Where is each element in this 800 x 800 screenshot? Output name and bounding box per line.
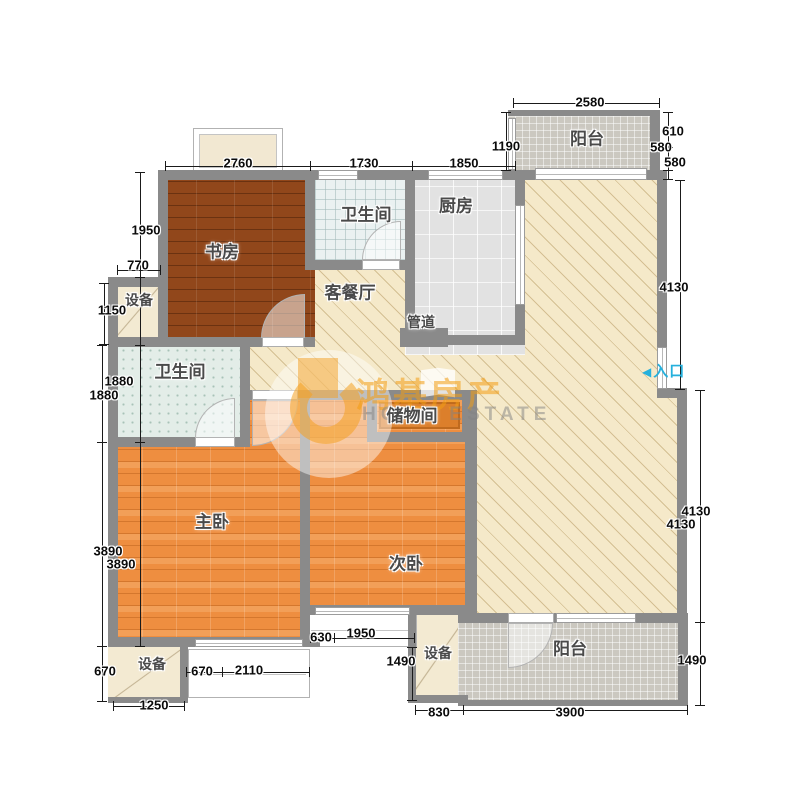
dimension-line	[309, 667, 310, 677]
dimension-line	[165, 161, 166, 171]
living-room-top-window	[535, 168, 647, 180]
dimension-line	[463, 705, 464, 715]
master-bay-window-strip	[195, 639, 303, 647]
bathroom-left-door-opening	[195, 437, 235, 447]
dimension-line	[117, 265, 118, 275]
dimension-line	[97, 646, 107, 647]
dimension-line	[695, 622, 705, 623]
dimension-line	[675, 180, 685, 181]
dimension-label: 1880	[105, 375, 134, 388]
dimension-line	[414, 633, 415, 643]
wall	[508, 110, 660, 116]
dimension-line	[97, 442, 107, 443]
dimension-label: 1490	[678, 654, 707, 667]
dimension-label: 1880	[90, 389, 119, 402]
room-label: 阳台	[570, 131, 604, 148]
room-label: 书房	[205, 244, 239, 261]
entrance-label: 入口	[653, 364, 685, 379]
dimension-line	[695, 705, 705, 706]
dimension-line	[135, 172, 145, 173]
dimension-label: 1950	[347, 627, 376, 640]
dimension-line	[407, 700, 417, 701]
dimension-line	[186, 667, 187, 677]
dimension-line	[663, 112, 673, 113]
dimension-line	[687, 705, 688, 715]
dimension-line	[513, 98, 514, 108]
dimension-line	[675, 389, 685, 390]
dimension-line	[415, 710, 688, 711]
dimension-label: 1950	[132, 224, 161, 237]
balcony-bottom-floor	[458, 613, 688, 706]
dimension-line	[140, 172, 141, 647]
room-label: 设备	[138, 657, 166, 671]
dimension-line	[135, 646, 145, 647]
dimension-line	[99, 283, 109, 284]
dimension-label: 610	[662, 125, 684, 138]
dimension-line	[135, 442, 145, 443]
wall	[305, 170, 315, 270]
room-label: 次卧	[389, 556, 423, 573]
dimension-label: 830	[428, 706, 450, 719]
dimension-label: 1730	[350, 157, 379, 170]
dimension-label: 580	[664, 156, 686, 169]
entrance-arrow-icon: ◀	[642, 366, 651, 378]
dimension-line	[97, 701, 107, 702]
kitchen-sliding-door	[515, 205, 525, 305]
dimension-label: 630	[310, 631, 332, 644]
room-label: 储物间	[387, 408, 438, 425]
dimension-label: 670	[191, 665, 213, 678]
dimension-label: 1850	[450, 157, 479, 170]
room-label: 管道	[407, 315, 435, 329]
dimension-label: 3890	[107, 558, 136, 571]
room-label: 设备	[125, 293, 153, 307]
dimension-label: 2110	[235, 664, 263, 677]
room-label: 设备	[424, 646, 452, 660]
watermark-logo-arc	[290, 372, 362, 444]
dimension-label: 2760	[224, 157, 253, 170]
dimension-label: 670	[94, 665, 116, 678]
balcony-door-opening	[508, 613, 554, 623]
room-label: 主卧	[195, 514, 229, 531]
dimension-line	[184, 701, 185, 711]
room-label: 厨房	[439, 198, 473, 215]
dimension-line	[663, 179, 673, 180]
pipe-duct-box	[400, 328, 448, 347]
dimension-label: 1250	[140, 699, 169, 712]
room-label: 卫生间	[341, 207, 392, 224]
dimension-line	[659, 98, 660, 108]
dimension-label: 4130	[667, 518, 696, 531]
dimension-line	[160, 265, 161, 275]
dimension-line	[515, 161, 516, 171]
mask-top-right	[667, 96, 767, 388]
dimension-label: 580	[650, 141, 672, 154]
wall	[158, 170, 168, 347]
dimension-line	[501, 170, 511, 171]
study-door-opening	[262, 337, 304, 347]
dimension-line	[415, 705, 416, 715]
dimension-label: 1150	[98, 304, 126, 317]
balcony-bottom-window	[556, 613, 636, 623]
room-label: 客餐厅	[325, 285, 376, 302]
dimension-line	[135, 277, 145, 278]
dimension-line	[97, 345, 107, 346]
dimension-line	[663, 170, 673, 171]
kitchen-window	[428, 170, 503, 180]
dimension-line	[501, 112, 511, 113]
bathroom-top-window	[318, 170, 358, 180]
dimension-line	[222, 667, 223, 677]
dimension-label: 3900	[556, 706, 585, 719]
dimension-label: 1490	[387, 655, 416, 668]
dimension-line	[695, 390, 705, 391]
bathroom-top-door-opening	[362, 260, 400, 270]
dimension-line	[135, 345, 145, 346]
floor-plan: 鸿基房产 HOME ESTATE 书房卫生间厨房阳台客餐厅管道设备卫生间储物间主…	[0, 0, 800, 800]
dimension-line	[412, 161, 413, 171]
dimension-label: 4130	[660, 281, 689, 294]
dimension-line	[334, 633, 335, 643]
dimension-label: 2580	[576, 96, 605, 109]
room-label: 卫生间	[155, 364, 206, 381]
wall	[408, 695, 468, 703]
second-bedroom-window-strip	[315, 607, 410, 615]
dimension-label: 770	[127, 259, 149, 272]
dimension-line	[310, 161, 311, 171]
dimension-label: 1190	[492, 140, 520, 153]
dimension-line	[407, 647, 417, 648]
dimension-line	[113, 701, 114, 711]
entrance-marker: ◀ 入口	[642, 364, 685, 379]
room-label: 阳台	[553, 641, 587, 658]
wall	[108, 277, 118, 647]
